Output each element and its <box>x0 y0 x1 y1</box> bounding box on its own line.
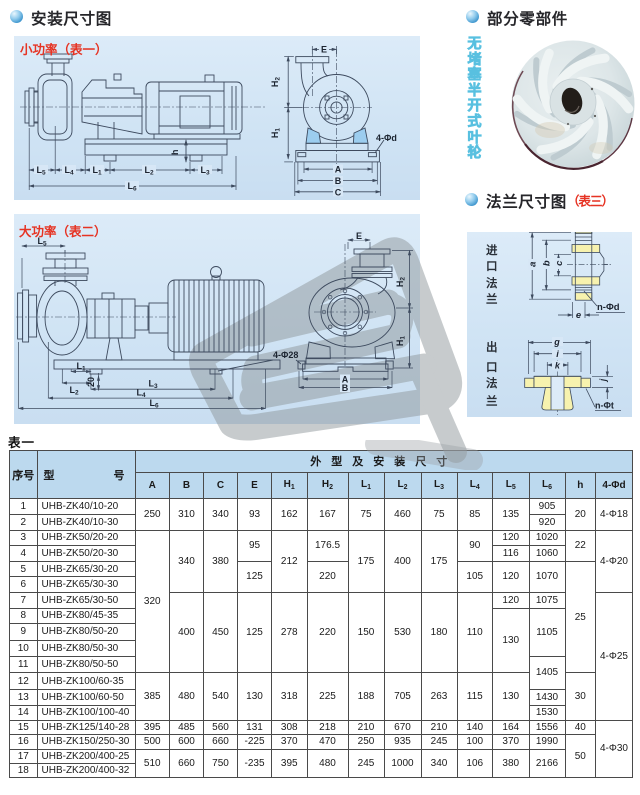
svg-text:4-Φ28: 4-Φ28 <box>273 350 298 360</box>
svg-text:B: B <box>335 176 342 186</box>
svg-text:口: 口 <box>486 260 498 273</box>
svg-text:L3: L3 <box>148 379 158 391</box>
svg-text:a: a <box>528 262 539 267</box>
svg-text:H2: H2 <box>395 277 407 288</box>
svg-text:L1: L1 <box>76 361 86 373</box>
svg-text:h: h <box>170 150 180 156</box>
svg-text:L2: L2 <box>69 385 79 397</box>
svg-text:L6: L6 <box>149 398 159 410</box>
svg-text:b: b <box>542 260 553 266</box>
svg-text:j: j <box>598 378 608 382</box>
svg-text:20: 20 <box>86 377 96 387</box>
svg-text:c: c <box>554 260 565 266</box>
svg-text:H2: H2 <box>270 77 282 88</box>
svg-text:H1: H1 <box>395 336 407 347</box>
svg-text:4-Φd: 4-Φd <box>376 133 397 143</box>
svg-text:兰: 兰 <box>486 292 498 306</box>
svg-text:g: g <box>553 337 560 347</box>
svg-text:进: 进 <box>486 243 498 257</box>
svg-text:E: E <box>356 231 362 241</box>
svg-text:n-Φt: n-Φt <box>595 401 614 411</box>
svg-text:A: A <box>335 165 342 175</box>
svg-text:法: 法 <box>486 276 498 290</box>
svg-text:H1: H1 <box>270 128 282 139</box>
svg-text:e: e <box>576 310 582 321</box>
svg-text:E: E <box>321 45 327 55</box>
svg-text:n-Φd: n-Φd <box>597 302 620 313</box>
svg-text:法: 法 <box>486 376 498 390</box>
svg-text:B: B <box>342 383 349 393</box>
svg-text:C: C <box>335 187 342 197</box>
svg-text:出: 出 <box>486 340 498 354</box>
svg-text:口: 口 <box>486 361 498 374</box>
svg-text:兰: 兰 <box>486 394 498 408</box>
